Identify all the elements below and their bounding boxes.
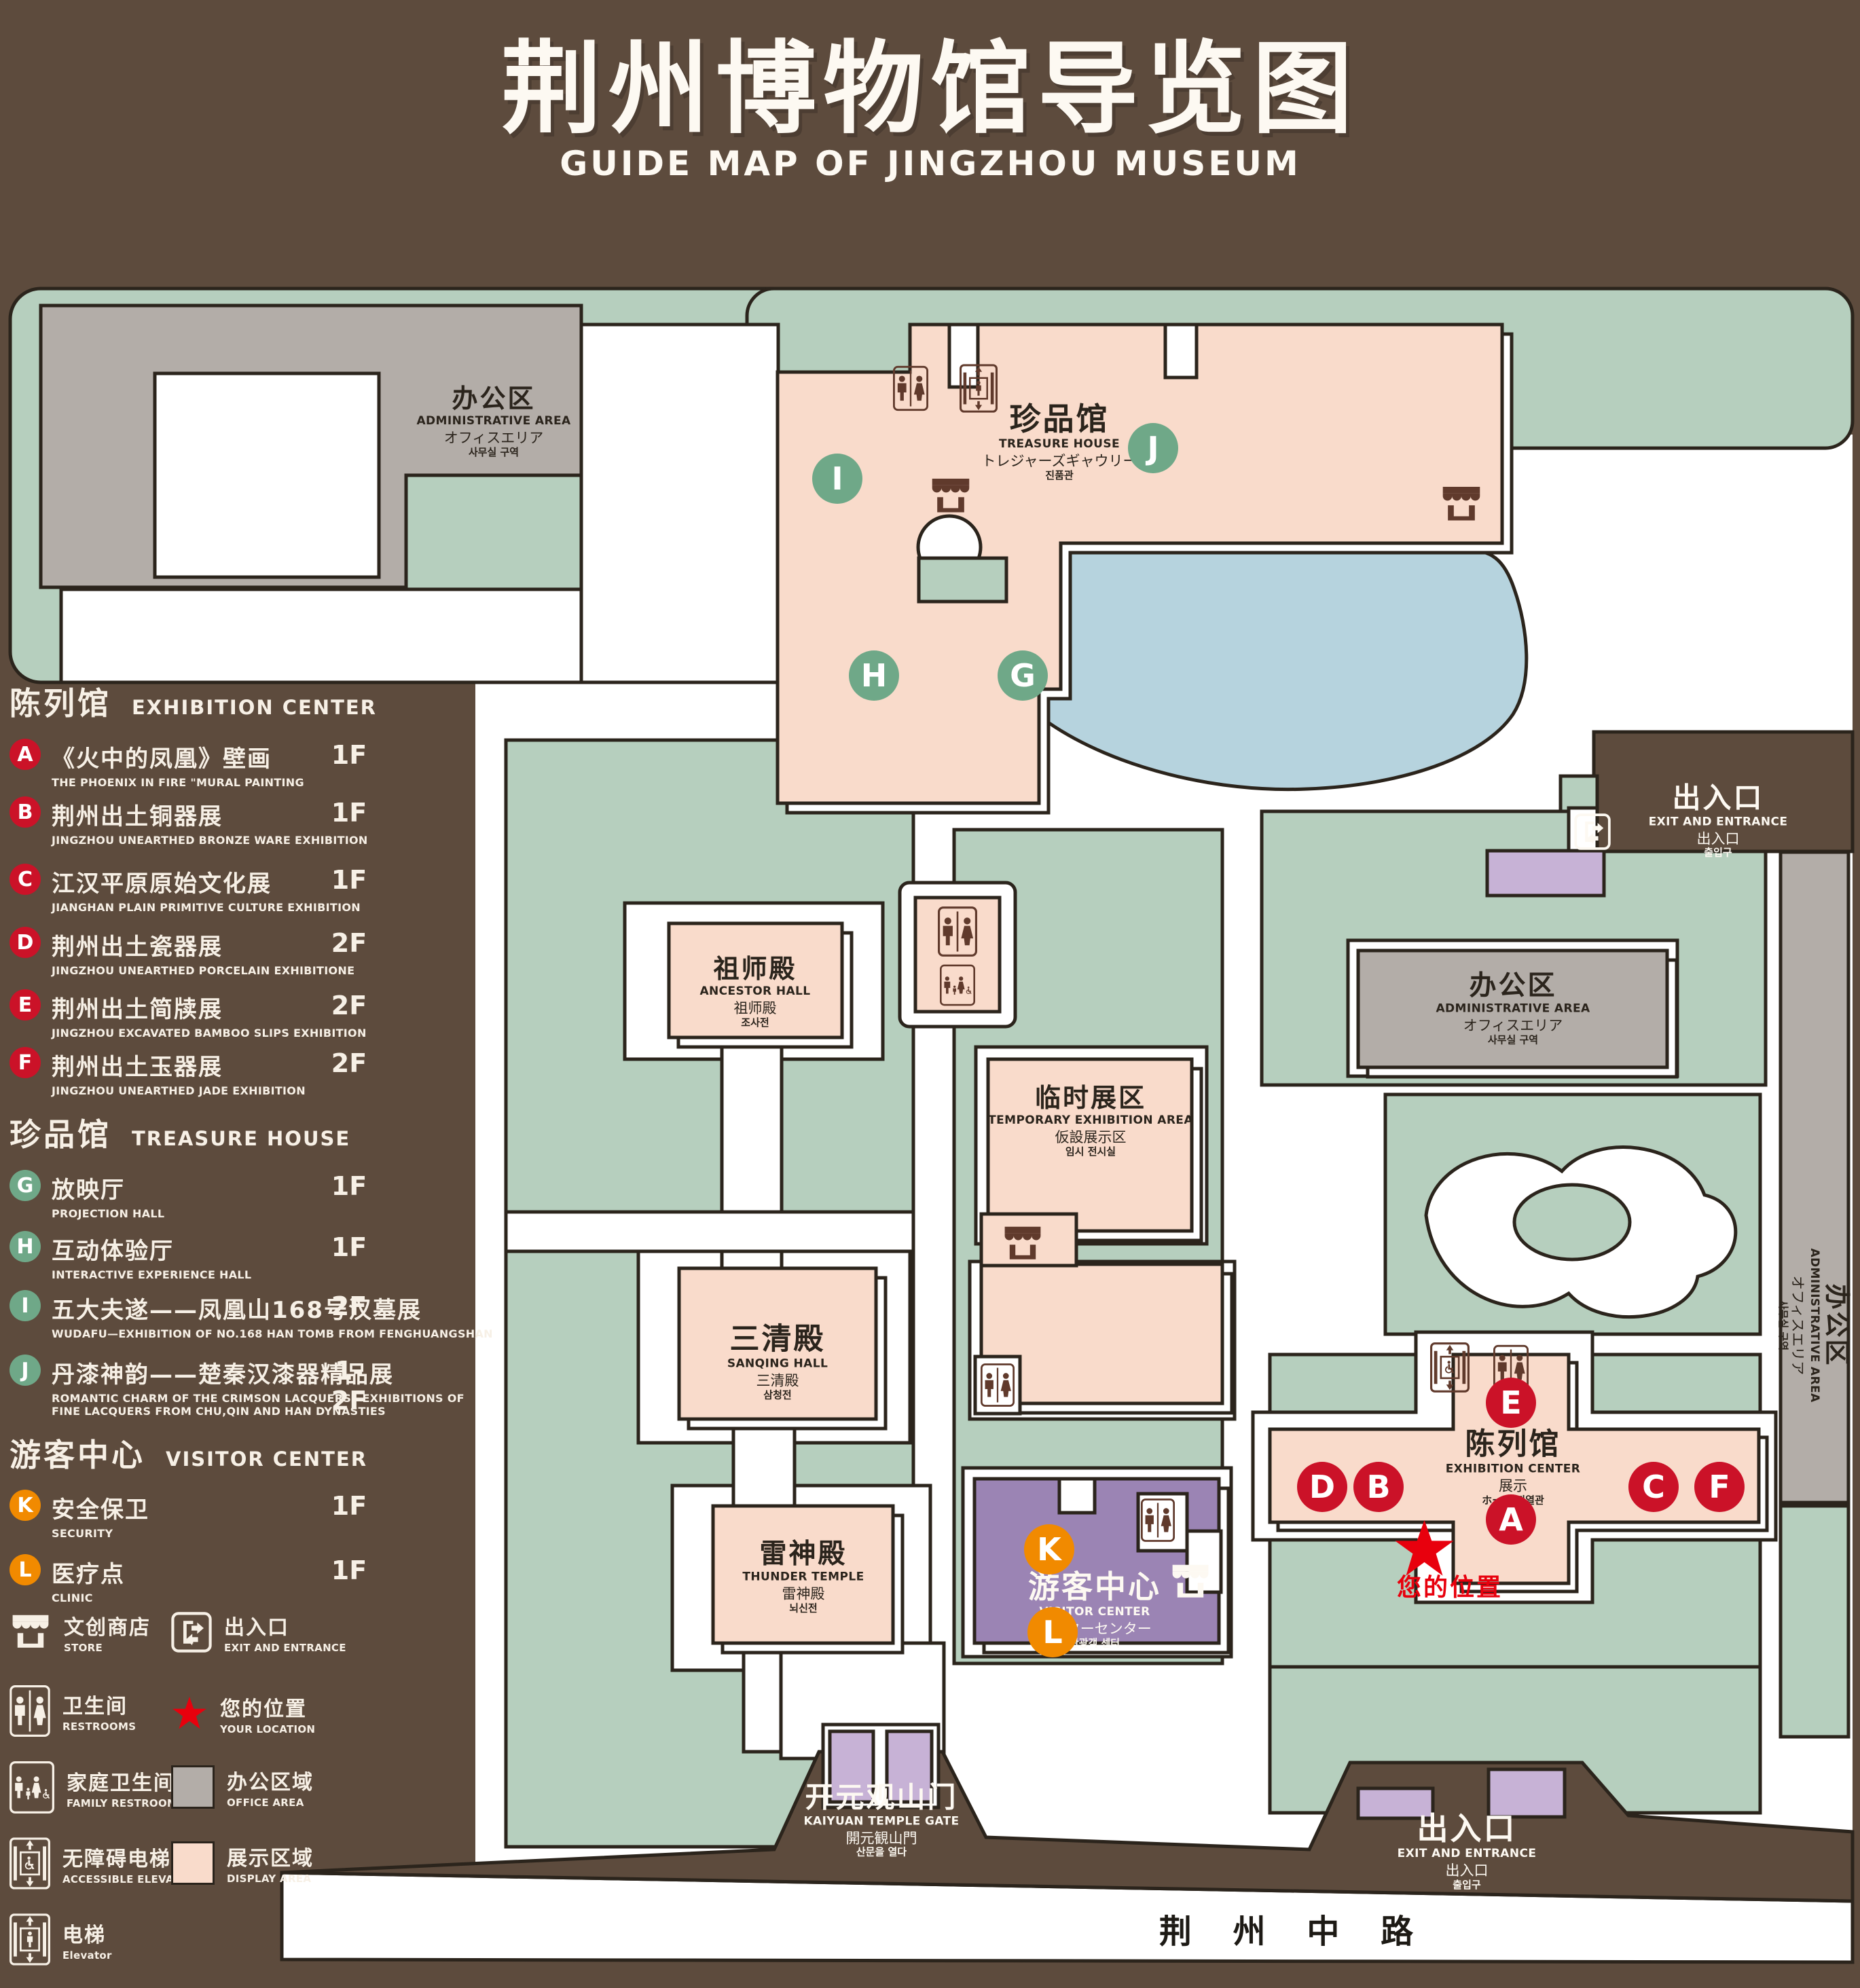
map-marker-f: F <box>1694 1462 1745 1512</box>
legend-item-h: H 互动体验厅INTERACTIVE EXPERIENCE HALL 1F <box>10 1232 471 1281</box>
map-marker-e: E <box>1486 1378 1536 1428</box>
label-ancestor-hall: 祖师殿ANCESTOR HALL 祖师殿조사전 <box>699 954 810 1029</box>
label-admin-right: 办公区ADMINISTRATIVE AREA オフィスエリア사무실 구역 <box>1436 970 1590 1047</box>
accessible-elevator-icon <box>10 1837 50 1890</box>
map-marker-l: L <box>1027 1607 1078 1657</box>
map-marker-j: J <box>1128 423 1178 473</box>
legend-symbol-elevator: 电梯Elevator <box>10 1913 112 1966</box>
family-restroom-icon <box>10 1761 54 1814</box>
legend-symbol-restrooms: 卫生间RESTROOMS <box>10 1685 136 1737</box>
legend-item-a: A 《火中的凤凰》壁画THE PHOENIX IN FIRE "MURAL PA… <box>10 740 471 789</box>
map-marker-g: G <box>998 650 1048 701</box>
your-location-label: 您的位置 <box>1397 1568 1503 1603</box>
legend-section-treasure: 珍品馆TREASURE HOUSE <box>10 1110 350 1155</box>
label-thunder-temple: 雷神殿THUNDER TEMPLE 雷神殿뇌신전 <box>742 1539 864 1615</box>
map-marker-c: C <box>1628 1462 1679 1512</box>
legend-symbol-exit: 出入口EXIT AND ENTRANCE <box>171 1608 346 1657</box>
legend-item-k: K 安全保卫SECURITY 1F <box>10 1491 471 1540</box>
legend-section-visitor: 游客中心VISITOR CENTER <box>10 1431 367 1475</box>
label-admin-strip: 办公区ADMINISTRATIVE AREA オフィスエリア사무실 구역 <box>1777 1248 1852 1402</box>
legend-item-e: E 荆州出土简牍展JINGZHOU EXCAVATED BAMBOO SLIPS… <box>10 991 471 1039</box>
legend-symbol-location: 您的位置YOUR LOCATION <box>171 1692 315 1735</box>
legend-symbol-office-area: 办公区域OFFICE AREA <box>171 1765 314 1809</box>
legend-symbol-store: 文创商店STORE <box>10 1610 151 1654</box>
elevator-icon <box>10 1913 50 1966</box>
restroom-icon <box>10 1685 50 1737</box>
garden-island <box>1514 1185 1630 1259</box>
legend-symbol-display-area: 展示区域DISPLAY AREA <box>171 1841 314 1885</box>
legend-item-f: F 荆州出土玉器展JINGZHOU UNEARTHED JADE EXHIBIT… <box>10 1048 471 1097</box>
display-area-swatch <box>171 1841 215 1885</box>
map-marker-a: A <box>1486 1494 1536 1545</box>
map-marker-i: I <box>812 454 862 504</box>
legend-item-d: D 荆州出土瓷器展JINGZHOU UNEARTHED PORCELAIN EX… <box>10 928 471 977</box>
map-marker-h: H <box>849 650 899 701</box>
map-marker-b: B <box>1353 1462 1404 1512</box>
legend-symbol-family-restrooms: 家庭卫生间FAMILY RESTROOMS <box>10 1761 185 1814</box>
office-area-swatch <box>171 1765 215 1809</box>
map-marker-k: K <box>1024 1524 1074 1575</box>
label-exit-top-right: 出入口EXIT AND ENTRANCE 出入口출입구 <box>1649 781 1788 859</box>
label-exit-bottom-right: 出入口EXIT AND ENTRANCE 出入口출입구 <box>1398 1810 1537 1892</box>
legend-item-g: G 放映厅PROJECTION HALL 1F <box>10 1171 471 1220</box>
label-road: 荆 州 中 路 <box>1159 1904 1428 1952</box>
legend-item-b: B 荆州出土铜器展JINGZHOU UNEARTHED BRONZE WARE … <box>10 798 471 847</box>
label-sanqing-hall: 三清殿SANQING HALL 三清殿삼청전 <box>727 1321 828 1401</box>
exit-icon <box>171 1608 212 1657</box>
museum-guide-map-poster: 荆州博物馆导览图 GUIDE MAP OF JINGZHOU MUSEUM 办公… <box>0 0 1860 1988</box>
legend-section-exhibition: 陈列馆EXHIBITION CENTER <box>10 679 377 724</box>
legend-symbol-accessible-elevator: 无障碍电梯ACCESSIBLE ELEVATOR <box>10 1837 197 1890</box>
label-kaiyuan-gate: 开元观山门KAIYUAN TEMPLE GATE 開元観山門산문을 열다 <box>803 1780 959 1858</box>
building-gatehouse-top-right <box>1487 851 1604 896</box>
page-title: 荆州博物馆导览图 <box>501 7 1360 153</box>
page-subtitle: GUIDE MAP OF JINGZHOU MUSEUM <box>560 144 1300 183</box>
legend-panel: 陈列馆EXHIBITION CENTER A 《火中的凤凰》壁画THE PHOE… <box>0 0 489 1988</box>
legend-item-i: I 五大夫遂——凤凰山168号汉墓展WUDAFU—EXHIBITION OF N… <box>10 1291 471 1340</box>
map-marker-d: D <box>1297 1462 1347 1512</box>
label-treasure-house: 珍品馆TREASURE HOUSE トレジャーズギャウリー진품관 <box>982 401 1137 482</box>
legend-item-j: J 丹漆神韵——楚秦汉漆器精品展 ROMANTIC CHARM OF THE C… <box>10 1356 471 1418</box>
your-location-star-icon <box>171 1696 208 1731</box>
label-temporary-exhibition: 临时展区TEMPORARY EXHIBITION AREA 仮設展示区임시 전시… <box>988 1083 1193 1158</box>
legend-item-c: C 江汉平原原始文化展JIANGHAN PLAIN PRIMITIVE CULT… <box>10 865 471 914</box>
store-icon <box>10 1612 52 1653</box>
building-admin-strip <box>1781 852 1848 1503</box>
legend-item-l: L 医疗点CLINIC 1F <box>10 1556 471 1604</box>
